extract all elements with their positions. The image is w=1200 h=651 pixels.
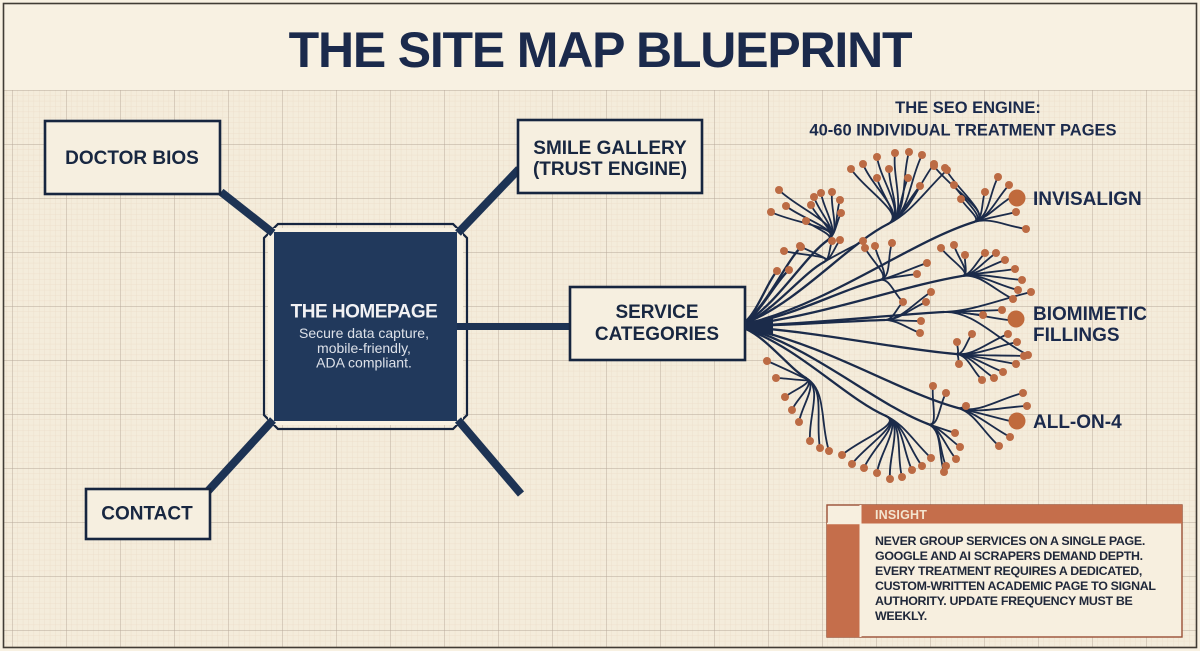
svg-text:FILLINGS: FILLINGS <box>1033 325 1120 346</box>
svg-text:SERVICE: SERVICE <box>615 302 698 323</box>
svg-text:THE SEO ENGINE:: THE SEO ENGINE: <box>895 99 1041 117</box>
svg-text:(TRUST ENGINE): (TRUST ENGINE) <box>533 159 687 180</box>
svg-text:CUSTOM-WRITTEN ACADEMIC PAGE T: CUSTOM-WRITTEN ACADEMIC PAGE TO SIGNAL <box>875 579 1156 593</box>
svg-text:GOOGLE AND AI SCRAPERS DEMAND: GOOGLE AND AI SCRAPERS DEMAND DEPTH. <box>875 549 1143 563</box>
svg-text:EVERY TREATMENT REQUIRES A DED: EVERY TREATMENT REQUIRES A DEDICATED, <box>875 564 1142 578</box>
svg-text:THE SITE MAP BLUEPRINT: THE SITE MAP BLUEPRINT <box>289 22 912 78</box>
svg-text:40-60 INDIVIDUAL TREATMENT PAG: 40-60 INDIVIDUAL TREATMENT PAGES <box>809 122 1116 140</box>
svg-text:BIOMIMETIC: BIOMIMETIC <box>1033 304 1147 325</box>
svg-text:CATEGORIES: CATEGORIES <box>595 324 719 345</box>
svg-text:INVISALIGN: INVISALIGN <box>1033 189 1142 210</box>
svg-text:Secure data capture,: Secure data capture, <box>299 325 429 341</box>
svg-text:WEEKLY.: WEEKLY. <box>875 609 927 623</box>
svg-text:SMILE GALLERY: SMILE GALLERY <box>533 138 687 159</box>
svg-text:ADA compliant.: ADA compliant. <box>316 355 412 371</box>
svg-text:AUTHORITY. UPDATE FREQUENCY MU: AUTHORITY. UPDATE FREQUENCY MUST BE <box>875 594 1133 608</box>
svg-text:DOCTOR BIOS: DOCTOR BIOS <box>65 148 199 169</box>
svg-text:INSIGHT: INSIGHT <box>875 508 927 522</box>
svg-text:THE HOMEPAGE: THE HOMEPAGE <box>291 302 438 323</box>
svg-text:NEVER GROUP SERVICES ON A SING: NEVER GROUP SERVICES ON A SINGLE PAGE. <box>875 534 1145 548</box>
svg-text:CONTACT: CONTACT <box>101 504 193 525</box>
svg-text:ALL-ON-4: ALL-ON-4 <box>1033 412 1122 433</box>
